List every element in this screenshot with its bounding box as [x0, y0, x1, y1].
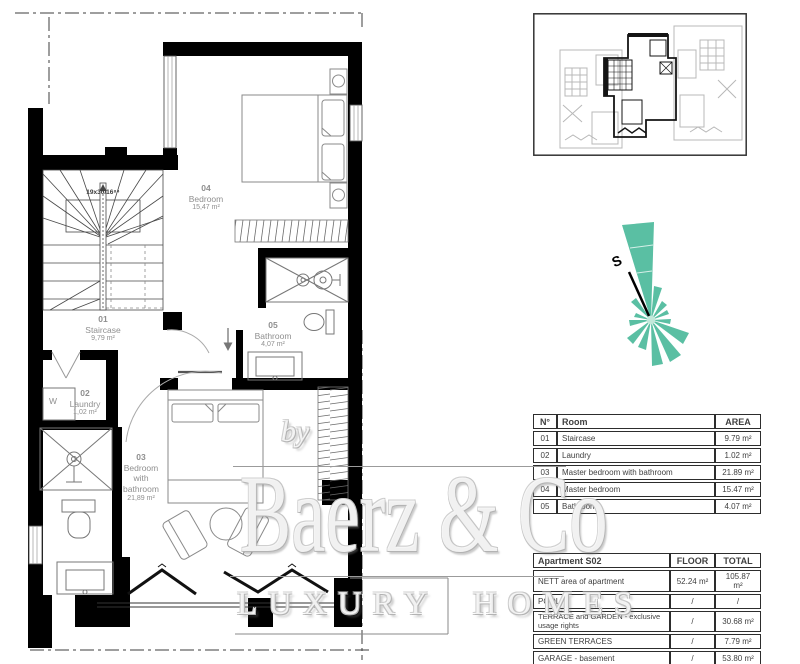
table-row: 03 Master bedroom with bathroom 21.89 m²: [533, 465, 761, 480]
cell-room: Bathroom: [557, 499, 715, 514]
room-area: 4,07 m²: [244, 341, 302, 350]
bathroom-03-fixtures: [40, 428, 113, 594]
wind-rose-wedges: [622, 222, 689, 366]
room-number: 04: [176, 183, 236, 194]
washer-label: W: [45, 396, 61, 406]
table-row: TERRACE and GARDEN - exclusive usage rig…: [533, 611, 761, 632]
room-number: 03: [111, 452, 171, 463]
cell-num: 03: [533, 465, 557, 480]
room-number: 05: [244, 320, 302, 331]
cell-floor: /: [670, 594, 715, 609]
room-number: 02: [60, 388, 110, 399]
col-header-room: Room: [557, 414, 715, 429]
cell-floor: /: [670, 651, 715, 664]
cell-total: 105.87 m²: [715, 570, 761, 592]
room-name: Staircase: [72, 325, 134, 336]
cell-room: Master bedroom: [557, 482, 715, 497]
room-name: Laundry: [60, 399, 110, 410]
room-number: 01: [72, 314, 134, 325]
apartment-summary-table: Apartment S02 FLOOR TOTAL NETT area of a…: [533, 551, 761, 664]
room-area: 15,47 m²: [176, 204, 236, 213]
bed-bedroom-03: [162, 390, 270, 561]
table-row: GREEN TERRACES / 7.79 m²: [533, 634, 761, 649]
direction-arrow: [224, 328, 233, 351]
table-row: POOL / /: [533, 594, 761, 609]
room-area: 21,89 m²: [111, 495, 171, 504]
cell-room: Staircase: [557, 431, 715, 446]
cell-total: 30.68 m²: [715, 611, 761, 632]
cell-area: 15.47 m²: [715, 482, 761, 497]
room-name: Bathroom: [244, 331, 302, 342]
compass-rose: [595, 200, 715, 385]
cell-total: 7.79 m²: [715, 634, 761, 649]
table-row: 05 Bathroom 4.07 m²: [533, 499, 761, 514]
table-header-row: Apartment S02 FLOOR TOTAL: [533, 553, 761, 568]
cell-area: 1.02 m²: [715, 448, 761, 463]
room-label-bedroom-04: 04 Bedroom 15,47 m²: [176, 183, 236, 213]
col-header-area: AREA: [715, 414, 761, 429]
apartment-title: Apartment S02: [533, 553, 670, 568]
room-label-laundry: 02 Laundry 1,02 m²: [60, 388, 110, 418]
cell-floor: /: [670, 611, 715, 632]
cell-num: 05: [533, 499, 557, 514]
walls: [28, 42, 362, 648]
cell-label: TERRACE and GARDEN - exclusive usage rig…: [533, 611, 670, 632]
table-row: 01 Staircase 9.79 m²: [533, 431, 761, 446]
col-header-total: TOTAL: [715, 553, 761, 568]
cell-area: 9.79 m²: [715, 431, 761, 446]
cell-num: 02: [533, 448, 557, 463]
table-row: GARAGE - basement / 53.80 m²: [533, 651, 761, 664]
cell-label: GARAGE - basement: [533, 651, 670, 664]
table-header-row: N° Room AREA: [533, 414, 761, 429]
room-name: Bedroom with bathroom: [111, 463, 171, 495]
stair-dimension-note: 19x30/16⁸⁴: [64, 189, 142, 196]
cell-label: GREEN TERRACES: [533, 634, 670, 649]
cell-label: POOL: [533, 594, 670, 609]
cell-room: Master bedroom with bathroom: [557, 465, 715, 480]
cell-floor: /: [670, 634, 715, 649]
cell-total: /: [715, 594, 761, 609]
room-area-table: N° Room AREA 01 Staircase 9.79 m² 02 Lau…: [533, 412, 761, 516]
compass-center: [647, 316, 656, 325]
floor-plan-page: 19x30/16⁸⁴ W 01 Staircase 9,79 m² 02 Lau…: [0, 0, 800, 664]
key-plan-inset: [533, 13, 747, 156]
room-label-staircase: 01 Staircase 9,79 m²: [72, 314, 134, 344]
room-area: 9,79 m²: [72, 335, 134, 344]
bed-master: [242, 69, 347, 208]
cell-room: Laundry: [557, 448, 715, 463]
table-row: 02 Laundry 1.02 m²: [533, 448, 761, 463]
room-area: 1,02 m²: [60, 409, 110, 418]
cell-area: 4.07 m²: [715, 499, 761, 514]
cell-num: 01: [533, 431, 557, 446]
room-label-bathroom-05: 05 Bathroom 4,07 m²: [244, 320, 302, 350]
table-row: 04 Master bedroom 15.47 m²: [533, 482, 761, 497]
col-header-floor: FLOOR: [670, 553, 715, 568]
room-name: Bedroom: [176, 194, 236, 205]
room-label-bedroom-03: 03 Bedroom with bathroom 21,89 m²: [111, 452, 171, 503]
cell-label: NETT area of apartment: [533, 570, 670, 592]
cell-num: 04: [533, 482, 557, 497]
cell-area: 21.89 m²: [715, 465, 761, 480]
table-row: NETT area of apartment 52.24 m² 105.87 m…: [533, 570, 761, 592]
cell-total: 53.80 m²: [715, 651, 761, 664]
wardrobes: [235, 220, 348, 500]
col-header-num: N°: [533, 414, 557, 429]
cell-floor: 52.24 m²: [670, 570, 715, 592]
